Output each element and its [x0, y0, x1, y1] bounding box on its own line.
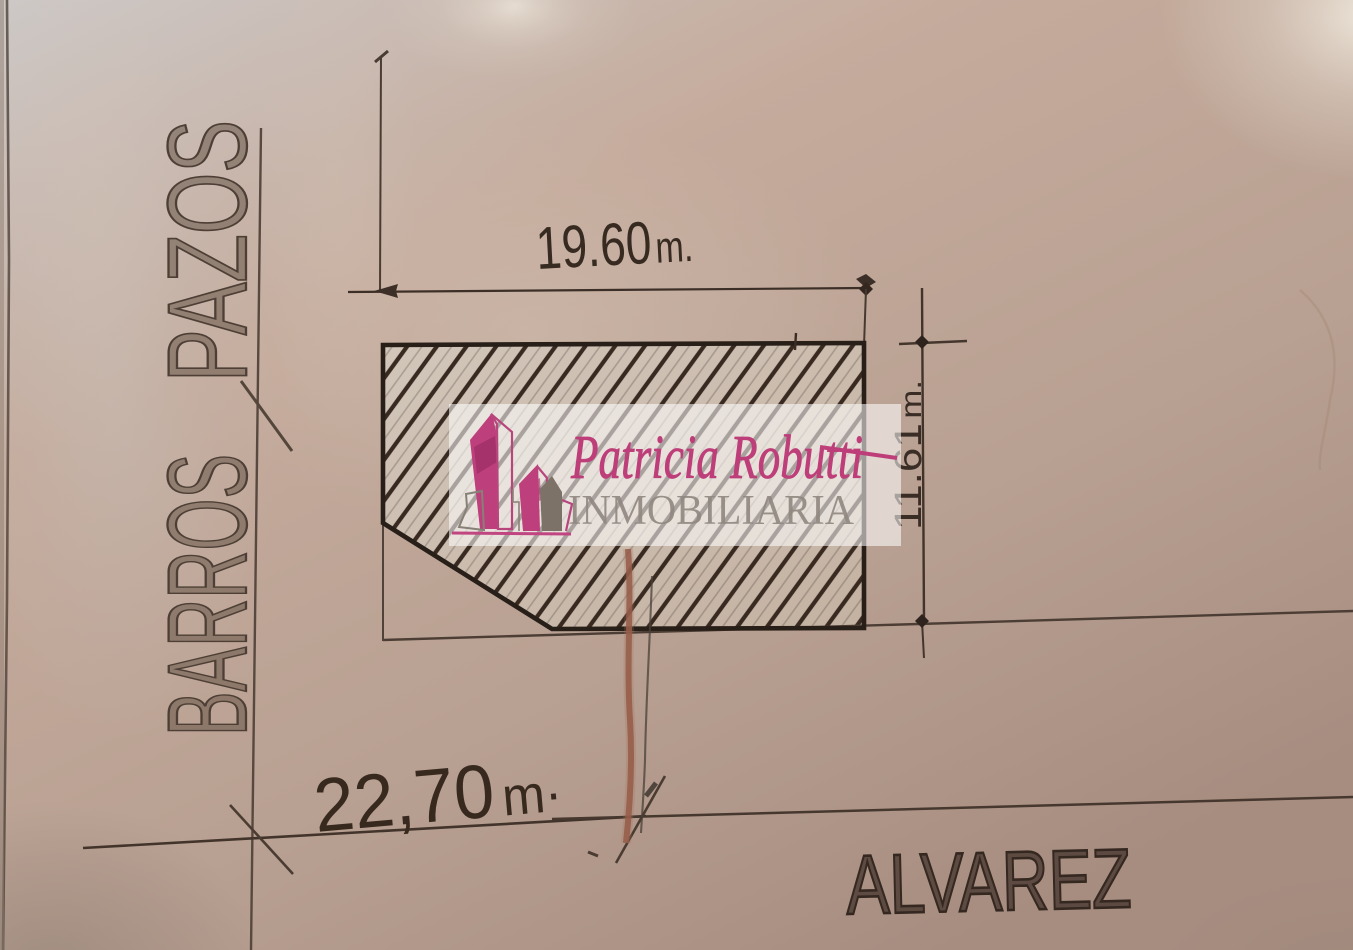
svg-text:PAZOS: PAZOS	[145, 120, 270, 382]
svg-text:INMOBILIARIA: INMOBILIARIA	[568, 488, 855, 534]
svg-text:ALVAREZ: ALVAREZ	[845, 831, 1132, 932]
svg-text:BARROS: BARROS	[145, 454, 270, 736]
svg-text:Patricia Robutti: Patricia Robutti	[570, 424, 863, 492]
